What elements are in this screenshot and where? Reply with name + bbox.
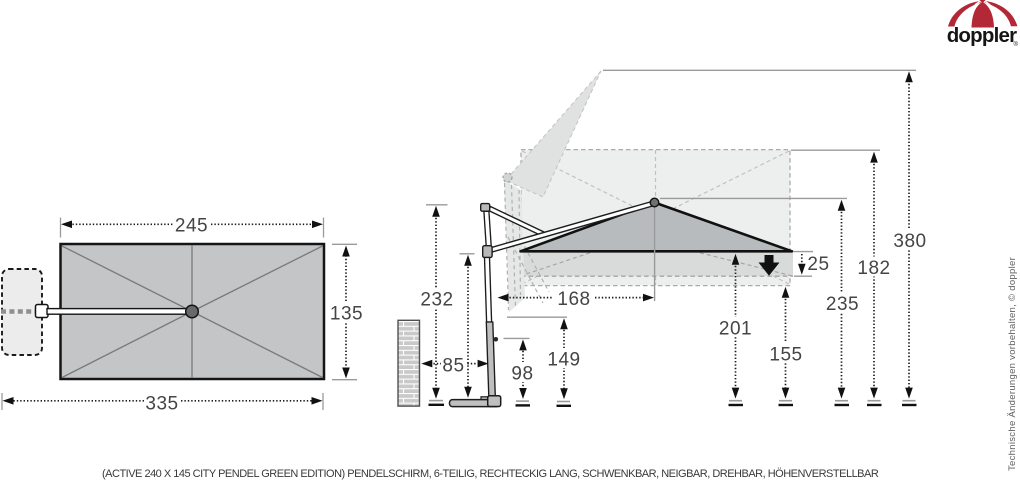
svg-text:235: 235 (826, 294, 859, 315)
svg-text:232: 232 (420, 290, 453, 311)
svg-text:182: 182 (857, 258, 890, 279)
svg-text:Technische Änderungen vorbehal: Technische Änderungen vorbehalten, © dop… (1007, 257, 1018, 471)
svg-text:201: 201 (719, 319, 752, 340)
svg-text:155: 155 (769, 345, 802, 366)
svg-text:335: 335 (145, 394, 178, 415)
svg-text:149: 149 (547, 350, 580, 371)
svg-text:®: ® (1014, 41, 1019, 48)
svg-text:135: 135 (330, 304, 363, 325)
svg-text:(ACTIVE 240 X 145 CITY PENDEL: (ACTIVE 240 X 145 CITY PENDEL GREEN EDIT… (102, 468, 879, 480)
svg-text:245: 245 (175, 215, 208, 236)
svg-text:168: 168 (557, 289, 590, 310)
svg-text:380: 380 (893, 231, 926, 252)
svg-text:98: 98 (511, 364, 533, 385)
svg-text:25: 25 (807, 254, 829, 275)
svg-text:doppler: doppler (947, 24, 1017, 47)
svg-text:85: 85 (442, 356, 464, 377)
